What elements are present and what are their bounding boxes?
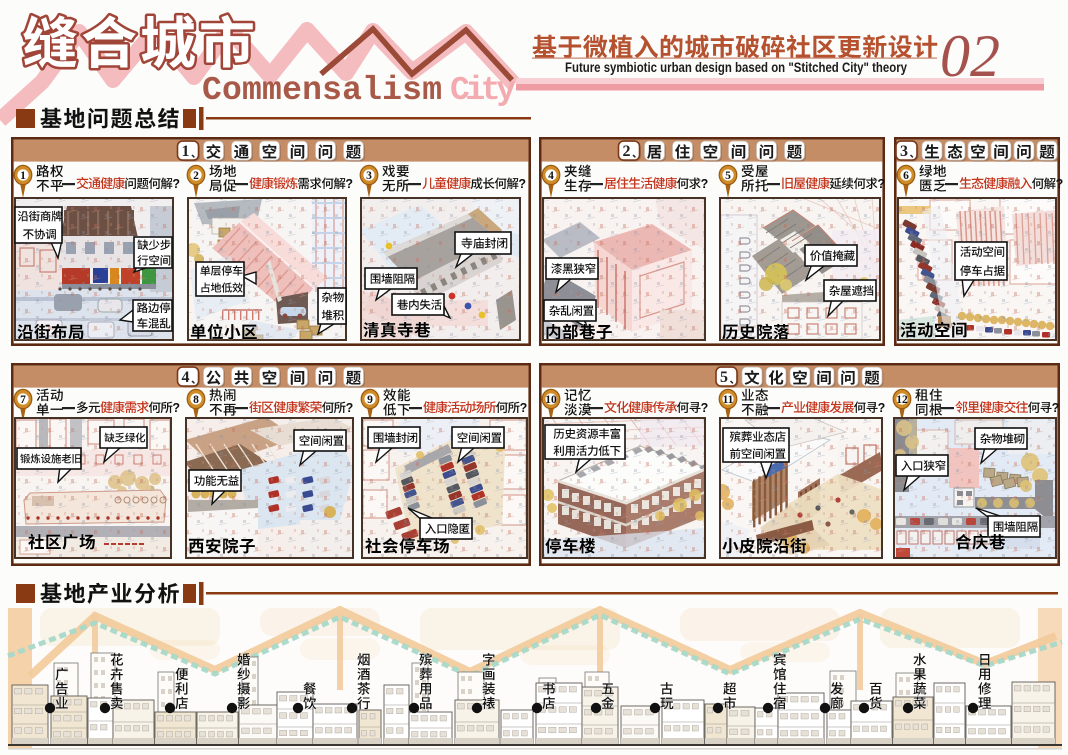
svg-text:?: ? <box>172 401 180 415</box>
svg-text:4: 4 <box>182 369 190 386</box>
svg-text:2: 2 <box>623 143 631 160</box>
svg-text:1: 1 <box>182 143 190 160</box>
svg-text:2: 2 <box>193 170 199 182</box>
svg-text:3: 3 <box>366 170 372 182</box>
svg-text:8: 8 <box>193 394 199 406</box>
svg-text:3: 3 <box>900 143 908 160</box>
svg-text:12: 12 <box>896 394 908 406</box>
svg-text:?: ? <box>172 177 180 191</box>
svg-text:1: 1 <box>20 170 26 182</box>
svg-text:?: ? <box>701 177 709 191</box>
svg-text:6: 6 <box>903 170 909 182</box>
svg-text:7: 7 <box>20 394 26 406</box>
svg-text:?: ? <box>1056 177 1064 191</box>
svg-text:?: ? <box>877 177 885 191</box>
svg-text:?: ? <box>518 177 526 191</box>
svg-text:?: ? <box>1052 401 1060 415</box>
svg-text:11: 11 <box>723 394 734 406</box>
svg-text:?: ? <box>345 177 353 191</box>
svg-text:Commensalism: Commensalism <box>202 72 442 109</box>
svg-text:?: ? <box>346 401 354 415</box>
svg-text:5: 5 <box>720 369 728 386</box>
svg-text:?: ? <box>878 401 886 415</box>
svg-text:9: 9 <box>367 394 373 406</box>
svg-text:5: 5 <box>725 170 731 182</box>
svg-text:?: ? <box>701 401 709 415</box>
svg-text:City: City <box>450 72 516 109</box>
svg-text:10: 10 <box>545 394 557 406</box>
svg-text:Future symbiotic urban design: Future symbiotic urban design based on "… <box>565 60 907 75</box>
svg-text:4: 4 <box>548 170 554 182</box>
svg-text:?: ? <box>520 401 528 415</box>
